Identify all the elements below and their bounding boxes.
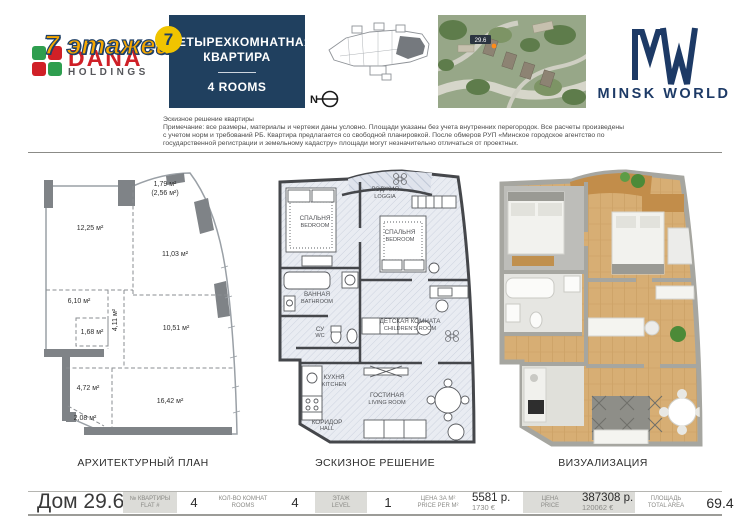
architectural-plan: 1,79 м² (2,56 м²) 12,25 м² 11,03 м² 6,10… xyxy=(38,168,248,450)
apartment-type-title-ru-1: ЧЕТЫРЕХКОМНАТНАЯ xyxy=(169,15,305,50)
svg-text:BEDROOM: BEDROOM xyxy=(386,237,415,243)
sketch-plan: ЛОДЖИЯ LOGGIA СПАЛЬНЯ BEDROOM СПАЛЬНЯ BE… xyxy=(272,168,478,452)
value-total-area: 69.4 xyxy=(697,492,743,513)
label-price-per-m2: ЦЕНА ЗА М²PRICE PER М² xyxy=(409,492,467,513)
caption-architectural-plan: АРХИТЕКТУРНЫЙ ПЛАН xyxy=(38,457,248,469)
svg-text:1,79 м²: 1,79 м² xyxy=(154,181,177,188)
apartment-type-box: 7 ЧЕТЫРЕХКОМНАТНАЯ КВАРТИРА 4 ROOMS xyxy=(169,15,305,108)
svg-text:29.6: 29.6 xyxy=(475,38,487,44)
svg-text:(2,56 м²): (2,56 м²) xyxy=(151,190,178,197)
dana-holdings-text: HOLDINGS xyxy=(68,67,149,78)
plant-icon-2 xyxy=(670,326,686,342)
label-level: ЭТАЖLEVEL xyxy=(315,492,367,513)
label-rooms: КОЛ-ВО КОМНАТROOMS xyxy=(211,492,275,513)
caption-sketch-plan: ЭСКИЗНОЕ РЕШЕНИЕ xyxy=(272,457,478,469)
svg-text:CHILDREN'S ROOM: CHILDREN'S ROOM xyxy=(384,326,437,332)
visualization-render xyxy=(492,168,714,454)
svg-text:4,72 м²: 4,72 м² xyxy=(77,385,100,392)
label-flat-number: № КВАРТИРЫFLAT # xyxy=(123,492,177,513)
svg-text:6,10 м²: 6,10 м² xyxy=(68,298,91,305)
minsk-world-logo: MINSK WORLD xyxy=(598,22,730,102)
value-level: 1 xyxy=(367,492,409,513)
header-separator xyxy=(28,152,722,153)
north-arrow-icon: N xyxy=(302,88,344,110)
svg-text:КОРИДОР: КОРИДОР xyxy=(312,419,343,426)
svg-text:СПАЛЬНЯ: СПАЛЬНЯ xyxy=(385,229,416,236)
svg-text:LOGGIA: LOGGIA xyxy=(374,194,396,200)
aerial-site-map: 29.6 xyxy=(438,15,586,108)
svg-text:2,08 м²: 2,08 м² xyxy=(74,415,97,422)
label-total-area: ПЛОЩАДЬTOTAL AREA xyxy=(635,492,697,513)
building-title: Дом 29.6 xyxy=(37,490,124,514)
caption-visualization: ВИЗУАЛИЗАЦИЯ xyxy=(492,457,714,469)
map-marker-icon xyxy=(492,44,497,49)
svg-text:KITCHEN: KITCHEN xyxy=(322,382,347,388)
value-price-per-m2: 5581 р.1730 € xyxy=(467,492,523,513)
svg-text:12,25 м²: 12,25 м² xyxy=(77,225,104,232)
svg-text:СПАЛЬНЯ: СПАЛЬНЯ xyxy=(300,215,331,222)
svg-text:ЛОДЖИЯ: ЛОДЖИЯ xyxy=(371,186,399,193)
svg-text:СУ: СУ xyxy=(316,326,325,333)
svg-text:BATHROOM: BATHROOM xyxy=(301,299,333,305)
svg-text:1,68 м²: 1,68 м² xyxy=(81,329,104,336)
svg-text:ВАННАЯ: ВАННАЯ xyxy=(304,291,330,298)
seven-floors-watermark: 7 этажей xyxy=(44,30,172,61)
svg-text:ГОСТИНАЯ: ГОСТИНАЯ xyxy=(370,392,404,399)
svg-text:10,51 м²: 10,51 м² xyxy=(163,325,190,332)
label-price: ЦЕНАPRICE xyxy=(523,492,577,513)
svg-text:N: N xyxy=(310,94,318,106)
apartment-type-title-en: 4 ROOMS xyxy=(169,80,305,95)
mw-monogram-icon xyxy=(635,28,695,84)
svg-text:КУХНЯ: КУХНЯ xyxy=(323,374,344,381)
apartment-sheet: DANA HOLDINGS 7 этажей 7 ЧЕТЫРЕХКОМНАТНА… xyxy=(0,0,750,530)
value-rooms: 4 xyxy=(275,492,315,513)
value-price: 387308 р.120062 € xyxy=(577,492,635,513)
apartment-type-title-ru-2: КВАРТИРА xyxy=(169,50,305,65)
footer-separator-bottom xyxy=(28,514,722,516)
apartment-data-row: № КВАРТИРЫFLAT # 4 КОЛ-ВО КОМНАТROOMS 4 … xyxy=(123,492,743,513)
svg-text:BEDROOM: BEDROOM xyxy=(301,223,330,229)
svg-text:LIVING ROOM: LIVING ROOM xyxy=(368,400,406,406)
svg-text:16,42 м²: 16,42 м² xyxy=(157,398,184,405)
plant-icon xyxy=(631,174,645,188)
building-floor-outline-drawing xyxy=(326,16,432,90)
svg-text:HALL: HALL xyxy=(320,426,334,432)
svg-text:4,11 м²: 4,11 м² xyxy=(112,308,119,331)
disclaimer-text: Эскизное решение квартиры Примечание: вс… xyxy=(163,116,745,148)
svg-text:ДЕТСКАЯ КОМНАТА: ДЕТСКАЯ КОМНАТА xyxy=(380,318,442,325)
value-flat-number: 4 xyxy=(177,492,211,513)
divider xyxy=(218,72,256,73)
svg-text:11,03 м²: 11,03 м² xyxy=(162,251,189,258)
floor-count-badge: 7 xyxy=(155,26,182,53)
minsk-world-wordmark: MINSK WORLD xyxy=(598,86,730,102)
svg-text:WC: WC xyxy=(315,333,324,339)
